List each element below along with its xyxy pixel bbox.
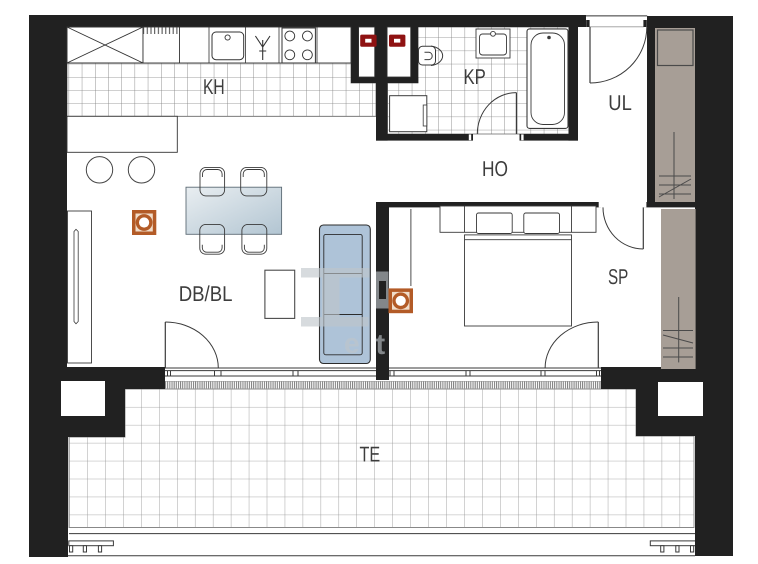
svg-text:KH: KH <box>203 75 225 99</box>
svg-text:TE: TE <box>360 443 381 467</box>
svg-text:HO: HO <box>482 157 508 181</box>
svg-text:DB/BL: DB/BL <box>179 282 233 306</box>
svg-text:SP: SP <box>608 265 628 289</box>
svg-text:UL: UL <box>608 91 632 115</box>
svg-text:t: t <box>376 329 386 361</box>
svg-text:KP: KP <box>464 65 486 89</box>
svg-text:e: e <box>344 328 360 359</box>
